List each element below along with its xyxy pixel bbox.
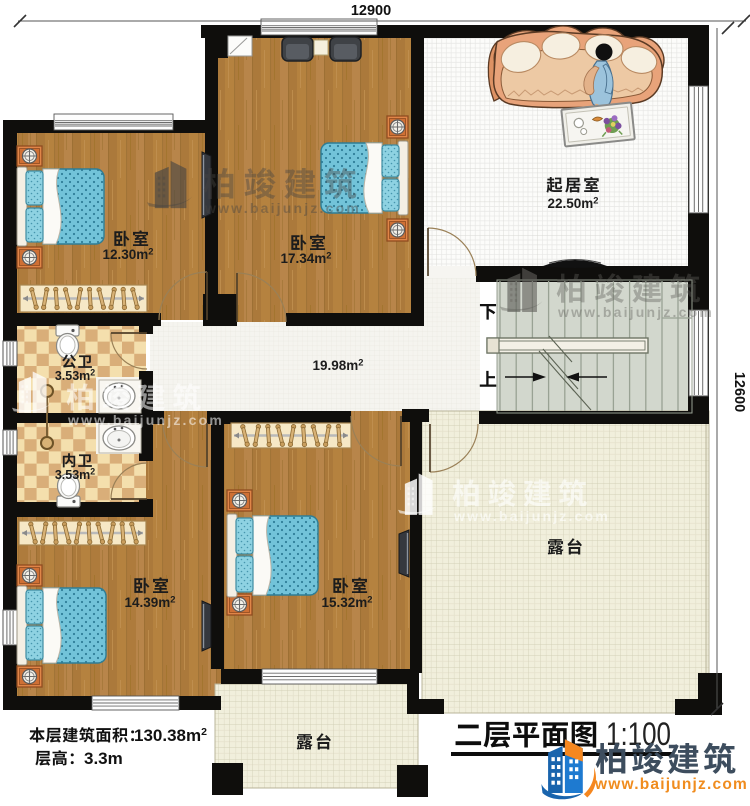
svg-text:14.39m2: 14.39m2 <box>124 593 175 610</box>
svg-text:19.98m2: 19.98m2 <box>312 356 363 373</box>
svg-text:www.baijunjz.com: www.baijunjz.com <box>67 412 224 428</box>
svg-text:12900: 12900 <box>351 3 391 19</box>
svg-text:3.53m2: 3.53m2 <box>55 467 95 482</box>
svg-text:www.baijunjz.com: www.baijunjz.com <box>204 200 361 216</box>
svg-text:15.32m2: 15.32m2 <box>321 593 372 610</box>
svg-text:22.50m2: 22.50m2 <box>547 194 598 211</box>
svg-text:130.38m2: 130.38m2 <box>134 726 207 745</box>
svg-text:www.baijunjz.com: www.baijunjz.com <box>594 776 748 793</box>
svg-text:12.30m2: 12.30m2 <box>102 245 153 262</box>
svg-text:12600: 12600 <box>731 372 747 412</box>
svg-text:17.34m2: 17.34m2 <box>280 249 331 266</box>
svg-text:3.3m: 3.3m <box>84 749 123 768</box>
svg-text:3.53m2: 3.53m2 <box>55 368 95 383</box>
svg-text:www.baijunjz.com: www.baijunjz.com <box>557 304 714 320</box>
svg-text:www.baijunjz.com: www.baijunjz.com <box>453 508 610 524</box>
